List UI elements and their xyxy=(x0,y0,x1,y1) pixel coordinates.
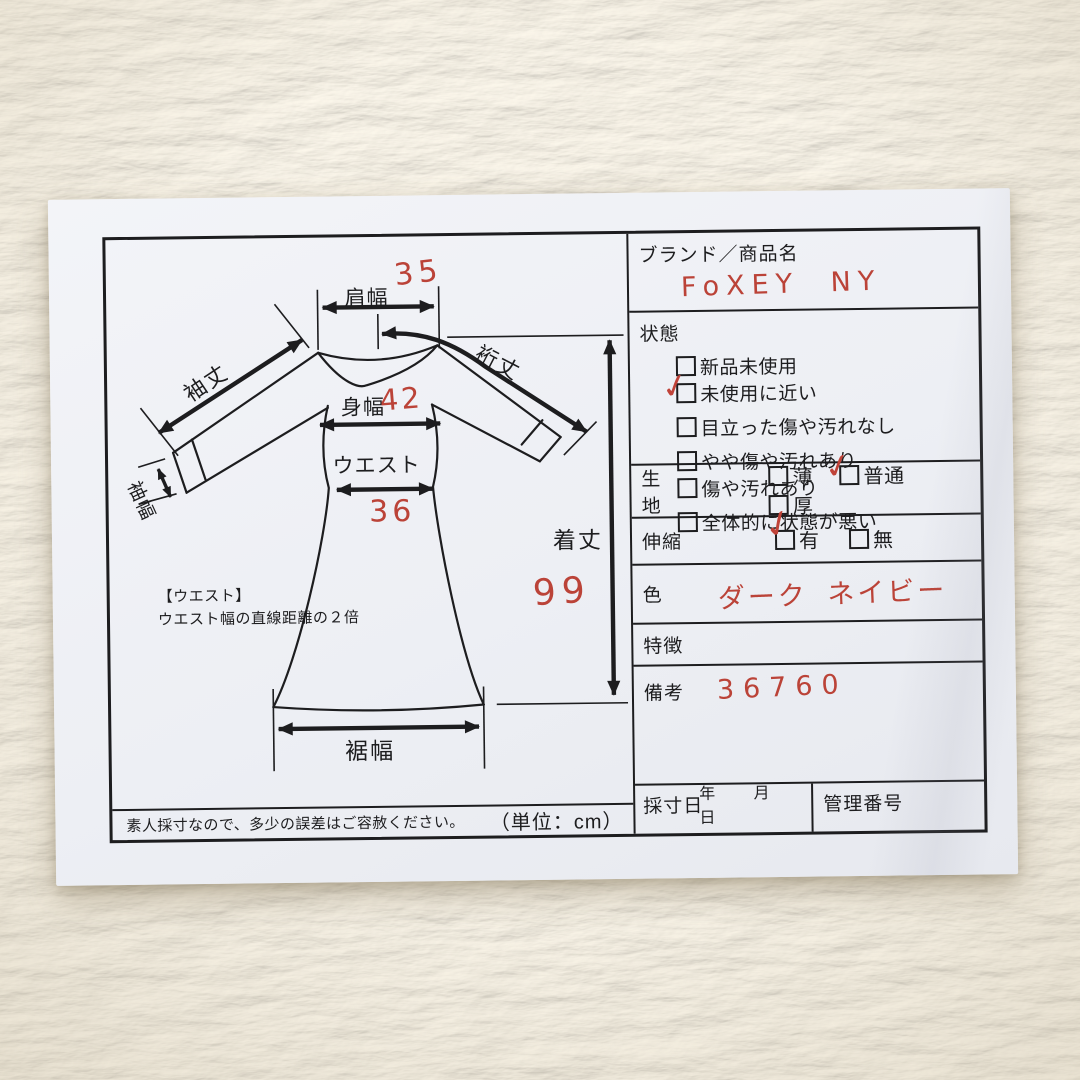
condition-option-near-unused: ✓未使用に近い xyxy=(676,379,817,408)
condition-line-1: 新品未使用✓未使用に近い xyxy=(676,350,970,408)
control-number-cell: 管理番号 xyxy=(813,782,985,832)
length-arrow xyxy=(610,340,614,695)
fabric-label: 生地 xyxy=(641,464,677,518)
color-row: 色 ダーク ネイビー xyxy=(632,560,982,623)
checkbox-near-unused xyxy=(676,383,696,403)
fabric-option-label: 薄 xyxy=(792,466,813,488)
color-value: ダーク ネイビー xyxy=(717,568,948,616)
stretch-options: ✓有 無 xyxy=(775,523,919,554)
date-units: 年 月 日 xyxy=(699,779,812,828)
waist-value: 36 xyxy=(369,494,416,530)
waist-note: 【ウエスト】 ウエスト幅の直線距離の２倍 xyxy=(158,583,360,632)
fabric-option-label: 普通 xyxy=(863,465,904,487)
condition-row: 状態 新品未使用✓未使用に近い 目立った傷や汚れなし やや傷や汚れあり傷や汚れあ… xyxy=(629,307,980,464)
form-column: ブランド／商品名 FoXEY NY 状態 新品未使用✓未使用に近い 目立った傷や… xyxy=(628,230,984,834)
body-width-value: 42 xyxy=(378,380,424,417)
hem-width-arrow xyxy=(279,727,479,729)
condition-option-label: 未使用に近い xyxy=(700,384,817,406)
checkbox-stretch-yes xyxy=(775,530,795,550)
waist-note-body: ウエスト幅の直線距離の２倍 xyxy=(158,606,360,632)
remarks-value: 36760 xyxy=(717,669,849,706)
checkbox-normal xyxy=(839,465,859,485)
waist-note-title: 【ウエスト】 xyxy=(158,583,360,609)
date-unit-day: 日 xyxy=(699,810,716,827)
brand-row: ブランド／商品名 FoXEY NY xyxy=(628,230,978,311)
features-label: 特徴 xyxy=(643,636,683,657)
checkbox-thick xyxy=(769,494,789,514)
unit-note: （単位：cm） xyxy=(490,805,624,836)
condition-option-label: 目立った傷や汚れなし xyxy=(701,417,896,440)
body-width-label: 身幅 xyxy=(341,395,385,420)
diagram-cell: 肩幅 裄丈 袖丈 袖幅 身幅 ウエスト 着丈 裾幅 35 42 36 99 xyxy=(105,234,635,840)
sheet-table: 肩幅 裄丈 袖丈 袖幅 身幅 ウエスト 着丈 裾幅 35 42 36 99 xyxy=(102,227,987,844)
disclaimer-text: 素人採寸なので、多少の誤差はご容赦ください。 xyxy=(126,811,464,836)
control-number-label: 管理番号 xyxy=(823,788,974,817)
stretch-option-yes: ✓有 xyxy=(775,525,820,555)
measure-date-cell: 採寸日 年 月 日 xyxy=(635,784,814,834)
stretch-option-label: 無 xyxy=(873,530,894,552)
garment-diagram: 肩幅 裄丈 袖丈 袖幅 身幅 ウエスト 着丈 裾幅 35 42 36 99 xyxy=(105,234,633,809)
date-unit-year: 年 xyxy=(699,786,716,803)
features-row: 特徴 xyxy=(633,619,982,665)
stretch-label: 伸縮 xyxy=(642,527,682,554)
length-value: 99 xyxy=(532,569,592,615)
remarks-label: 備考 xyxy=(644,683,684,704)
checkbox-new-unused xyxy=(676,356,696,376)
condition-option-new-unused: 新品未使用 xyxy=(676,351,852,380)
fabric-row: 生地 薄 ✓普通 厚 xyxy=(631,460,981,517)
length-label: 着丈 xyxy=(553,527,603,554)
yuki-label: 裄丈 xyxy=(471,341,525,385)
fabric-option-normal: ✓普通 xyxy=(839,459,904,489)
checkbox-thin xyxy=(768,465,788,485)
stretch-row: 伸縮 ✓有 無 xyxy=(632,513,982,564)
fabric-option-thin: 薄 xyxy=(768,466,813,489)
condition-label: 状態 xyxy=(639,316,968,347)
checkbox-no-stains xyxy=(677,417,697,437)
condition-line-2: 目立った傷や汚れなし xyxy=(677,411,970,442)
waist-arrow xyxy=(337,489,433,490)
diagram-area: 肩幅 裄丈 袖丈 袖幅 身幅 ウエスト 着丈 裾幅 35 42 36 99 xyxy=(105,234,633,809)
checkbox-stretch-no xyxy=(849,529,869,549)
photo-scene: 肩幅 裄丈 袖丈 袖幅 身幅 ウエスト 着丈 裾幅 35 42 36 99 xyxy=(0,0,1080,1080)
brand-value: FoXEY NY xyxy=(680,266,881,304)
date-unit-month: 月 xyxy=(754,785,771,802)
brand-label: ブランド／商品名 xyxy=(638,237,967,268)
stretch-option-label: 有 xyxy=(799,530,820,552)
waist-label: ウエスト xyxy=(332,454,420,478)
hem-width-label: 裾幅 xyxy=(345,738,395,765)
shoulder-width-label: 肩幅 xyxy=(344,286,388,311)
condition-option-no-stains: 目立った傷や汚れなし xyxy=(677,417,896,441)
condition-option-label: 新品未使用 xyxy=(700,357,798,379)
stretch-option-no: 無 xyxy=(849,530,894,553)
measurement-sheet: 肩幅 裄丈 袖丈 袖幅 身幅 ウエスト 着丈 裾幅 35 42 36 99 xyxy=(48,188,1018,886)
sleeve-width-arrow xyxy=(158,469,170,497)
remarks-row: 備考 36760 xyxy=(634,661,984,784)
date-and-number-row: 採寸日 年 月 日 管理番号 xyxy=(635,780,985,834)
body-width-arrow xyxy=(320,423,440,424)
shoulder-width-value: 35 xyxy=(392,253,444,293)
color-label: 色 xyxy=(643,580,663,607)
footer-band: 素人採寸なので、多少の誤差はご容赦ください。 （単位：cm） xyxy=(112,803,633,840)
fabric-options: 薄 ✓普通 厚 xyxy=(768,458,970,518)
